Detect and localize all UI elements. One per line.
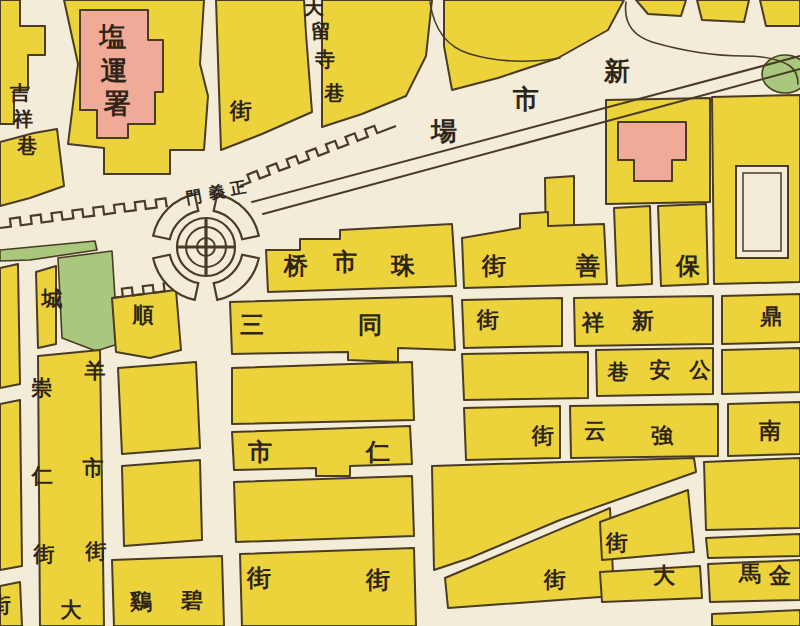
map-label-char: 桥	[283, 252, 309, 280]
city-map-canvas: 塩運署吉祥巷街天留寺巷新市場正義門珠市桥保善街順城三市街同仁街崇仁街羊市街大新祥…	[0, 0, 800, 626]
map-label-char: 街	[0, 592, 11, 617]
map-label-char: 鼎	[759, 304, 782, 329]
map-label-char: 碧	[180, 588, 203, 613]
map-label-char: 門	[184, 186, 203, 207]
map-label-char: 同	[358, 311, 382, 339]
biji-block	[112, 556, 224, 626]
map-label-char: 公	[689, 358, 712, 382]
map-label-char: 市	[332, 248, 357, 276]
map-label: 街	[605, 530, 628, 555]
map-label: 鼎	[759, 304, 782, 329]
map-label-char: 巷	[607, 360, 629, 384]
map-label-char: 署	[103, 88, 131, 119]
city-block	[614, 206, 652, 286]
city-block	[122, 460, 202, 546]
map-label-char: 城	[41, 287, 63, 311]
map-label-char: 吉	[9, 81, 30, 105]
map-label-char: 街	[543, 567, 566, 592]
map-label: 珠市桥	[283, 248, 416, 280]
map-label-char: 場	[430, 116, 457, 146]
map-label: 街	[476, 307, 499, 332]
map-label-char: 金	[768, 563, 791, 588]
map-label-char: 祥	[581, 310, 604, 335]
map-label-char: 留	[311, 19, 331, 43]
map-label-char: 仁	[364, 438, 390, 466]
map-label-char: 運	[100, 55, 128, 86]
city-block	[712, 610, 800, 626]
map-label-char: 塩	[98, 21, 127, 52]
map-label-char: 三	[240, 311, 264, 339]
city-block	[600, 566, 702, 602]
map-label-char: 保	[675, 252, 701, 280]
map-label: 南	[758, 418, 781, 443]
map-label-char: 寺	[314, 47, 335, 71]
map-label-char: 鷄	[129, 589, 152, 614]
city-block	[234, 476, 414, 542]
map-label-char: 強	[651, 423, 674, 448]
map-label-char: 市	[82, 456, 104, 480]
city-block	[722, 348, 800, 394]
city-block	[118, 362, 200, 454]
map-label-char: 大	[653, 563, 676, 588]
map-label-char: 云	[584, 418, 606, 443]
map-label: 街	[543, 567, 566, 592]
map-label-char: 羊	[84, 359, 106, 383]
city-block	[697, 0, 749, 22]
map-label-char: 街	[531, 423, 554, 448]
map-label-char: 義	[206, 181, 226, 203]
map-label: 大	[61, 598, 82, 622]
park-green	[58, 251, 118, 351]
map-label-char: 市	[247, 438, 272, 466]
map-label-char: 仁	[31, 464, 53, 488]
city-block	[232, 362, 414, 424]
map-label: 街	[229, 98, 252, 123]
map-label-char: 街	[481, 252, 506, 280]
map-label-char: 大	[61, 598, 82, 622]
map-label-char: 街	[229, 98, 252, 123]
map-label-char: 順	[132, 303, 154, 327]
city-block	[0, 264, 20, 388]
map-label-char: 祥	[12, 107, 33, 131]
map-label-char: 街	[246, 564, 271, 592]
map-label: 大	[653, 563, 676, 588]
map-label-char: 天	[303, 0, 324, 19]
map-label-char: 安	[650, 358, 671, 382]
map-label-char: 街	[365, 566, 390, 594]
city-block	[462, 352, 588, 400]
map-label-char: 街	[33, 542, 55, 566]
city-block	[706, 534, 800, 558]
map-label: 街	[531, 423, 554, 448]
map-label-char: 珠	[390, 252, 416, 280]
map-label-char: 崇	[31, 376, 53, 400]
map-label-char: 街	[85, 539, 107, 563]
map-label-char: 馬	[738, 561, 761, 586]
historical-city-map: 塩運署吉祥巷街天留寺巷新市場正義門珠市桥保善街順城三市街同仁街崇仁街羊市街大新祥…	[0, 0, 800, 626]
city-block	[760, 0, 800, 26]
map-label-char: 善	[575, 252, 600, 280]
city-block	[704, 458, 800, 530]
city-block	[0, 400, 22, 570]
map-label-char: 街	[476, 307, 499, 332]
map-label-char: 新	[603, 56, 630, 86]
white-courtyard-building	[736, 166, 788, 258]
map-label-char: 巷	[16, 134, 38, 158]
map-label: 公安巷	[607, 358, 712, 384]
map-label-char: 市	[512, 84, 539, 114]
map-label-char: 街	[605, 530, 628, 555]
map-label-char: 南	[758, 418, 781, 443]
map-label-char: 正	[227, 177, 247, 199]
map-label: 街	[0, 592, 11, 617]
map-label-char: 巷	[323, 81, 345, 105]
map-label-char: 新	[631, 308, 654, 333]
